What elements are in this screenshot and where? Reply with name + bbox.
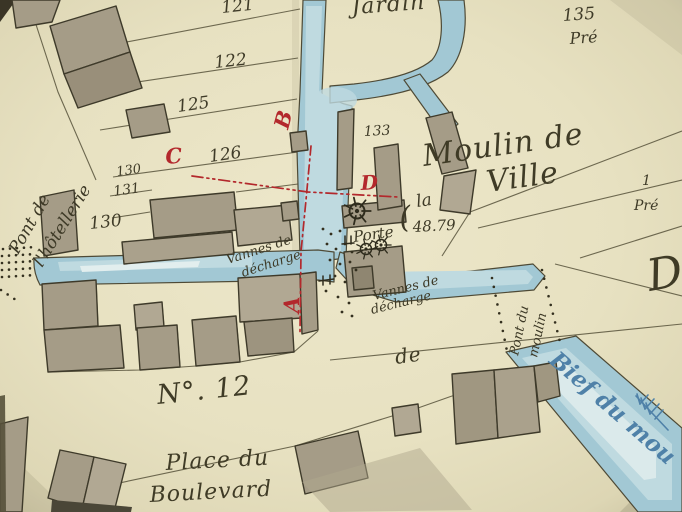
parcel-number-133: 133 <box>363 123 391 140</box>
building <box>337 109 354 190</box>
building <box>150 192 238 238</box>
map-edge-line <box>0 395 6 512</box>
map-canvas: A B C D Jardin 121 122 125 126 130 131 1… <box>0 0 682 512</box>
label-de: de <box>393 341 423 368</box>
parcel-number-130-lower: 130 <box>88 211 123 234</box>
ref-letter-c: C <box>164 143 183 169</box>
ref-letter-d: D <box>359 170 379 195</box>
building <box>192 316 240 366</box>
building <box>281 201 299 221</box>
label-la: la <box>415 190 433 212</box>
building <box>392 404 421 436</box>
parcel-number-122: 122 <box>213 50 247 73</box>
edge-label-pre: Pré <box>633 198 658 214</box>
parcel-number-135: 135 <box>562 4 596 26</box>
label-elevation: 48.79 <box>411 216 456 236</box>
building <box>244 318 294 356</box>
building <box>42 280 98 330</box>
building <box>440 170 476 214</box>
building <box>44 325 124 372</box>
cadastral-map: A B C D Jardin 121 122 125 126 130 131 1… <box>0 0 682 512</box>
building <box>126 104 170 138</box>
building <box>137 325 180 370</box>
building <box>494 366 540 438</box>
building <box>374 144 402 210</box>
edge-parcel-number: 1 <box>642 173 651 189</box>
building <box>452 370 498 444</box>
building <box>290 131 308 152</box>
label-pre: Pré <box>568 27 598 48</box>
ref-letter-a: A <box>279 297 304 315</box>
